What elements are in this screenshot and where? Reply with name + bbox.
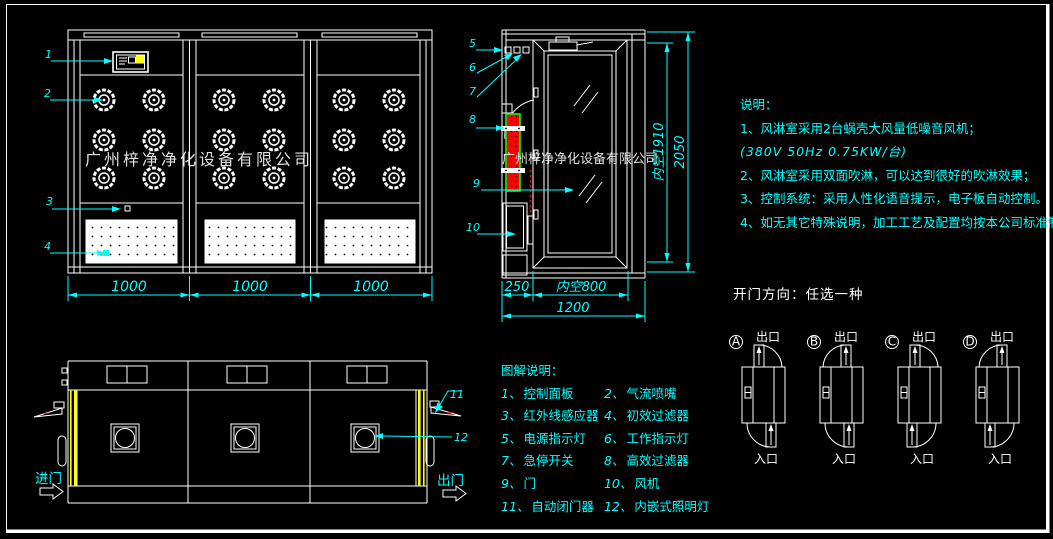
hepa-filter (501, 114, 525, 191)
option-letter: D (965, 335, 974, 349)
callout-12-light: 12 (454, 431, 468, 444)
door-direction-options: A 出口 入口 B 出口 入口 (730, 330, 1020, 466)
note-line: 1、风淋室采用2台蜗壳大风量低噪音风机； (740, 117, 1053, 141)
legend-title: 图解说明： (501, 360, 709, 383)
callout-8-hepa: 8 (469, 113, 476, 126)
exit-port-label: 出口 (912, 330, 936, 344)
legend-num: 4、 (604, 408, 624, 423)
legend-item: 5、电源指示灯 (501, 428, 600, 451)
legend-item: 9、门 (501, 473, 600, 496)
callout-1-control-panel: 1 (45, 48, 52, 61)
legend-label: 内嵌式照明灯 (634, 499, 709, 514)
door-option-b: B 出口 入口 (808, 330, 864, 466)
exit-door-edge (418, 390, 425, 486)
entry-port-label: 入口 (910, 452, 934, 466)
door-option-c: C 出口 入口 (886, 330, 942, 466)
note-line: 3、控制系统：采用人性化语音提示，电子板自动控制。 (740, 187, 1053, 211)
callout-11-door-closer: 11 (450, 388, 464, 401)
callout-3-ir-sensor: 3 (46, 195, 53, 208)
legend-label: 高效过滤器 (626, 453, 689, 468)
notes-block: 说明： 1、风淋室采用2台蜗壳大风量低噪音风机； (380V 50Hz 0.75… (740, 93, 1053, 234)
option-letter: A (732, 335, 741, 349)
option-letter: C (888, 335, 896, 349)
exit-port-label: 出口 (834, 330, 858, 344)
legend-num: 8、 (604, 453, 624, 468)
side-view-callouts (476, 47, 574, 237)
note-line-power-spec: (380V 50Hz 0.75KW/台) (740, 140, 1053, 164)
option-letter: B (810, 335, 818, 349)
cad-drawing-sheet: 1 2 3 4 1000 1000 1000 (0, 0, 1053, 539)
door-option-a: A 出口 入口 (730, 330, 786, 466)
callout-10-fan: 10 (466, 221, 480, 234)
glass-hatch (574, 85, 602, 203)
legend-label: 初效过滤器 (626, 408, 689, 423)
legend-block: 图解说明： 1、控制面板 2、气流喷嘴 3、红外线感应器 4、初效过滤器 5、电… (501, 360, 709, 518)
front-view: 1 2 3 4 1000 1000 1000 (44, 30, 432, 301)
callout-4-pre-filter: 4 (44, 240, 51, 253)
legend-num: 2、 (604, 386, 624, 401)
legend-item: 1、控制面板 (501, 383, 600, 406)
notes-title: 说明： (740, 93, 1053, 117)
legend-item: 12、内嵌式照明灯 (604, 496, 709, 519)
control-panel (113, 52, 148, 72)
legend-item: 3、红外线感应器 (501, 405, 600, 428)
dim-inner-1910: 内空1910 (652, 122, 667, 181)
legend-label: 控制面板 (523, 386, 573, 401)
note-line: 4、如无其它特殊说明，加工工艺及配置均按本公司标准制作。 (740, 211, 1053, 235)
entry-port-label: 入口 (988, 452, 1012, 466)
legend-item: 6、工作指示灯 (604, 428, 689, 451)
legend-num: 10、 (604, 476, 632, 491)
entry-port-label: 入口 (754, 452, 778, 466)
callout-9-door: 9 (473, 177, 480, 190)
legend-item: 8、高效过滤器 (604, 450, 689, 473)
entry-port-label: 入口 (832, 452, 856, 466)
legend-num: 11、 (501, 499, 529, 514)
legend-label: 自动闭门器 (531, 499, 594, 514)
note-line: 2、风淋室采用双面吹淋，可以达到很好的吹淋效果； (740, 164, 1053, 188)
legend-label: 电源指示灯 (523, 431, 586, 446)
dim-width-2: 1000 (232, 279, 268, 295)
callout-6-work-light: 6 (469, 61, 476, 74)
legend-item: 4、初效过滤器 (604, 405, 689, 428)
dim-1200: 1200 (556, 301, 589, 316)
dim-inner-800: 内空800 (556, 280, 607, 295)
legend-item: 7、急停开关 (501, 450, 600, 473)
legend-num: 3、 (501, 408, 521, 423)
exit-port-label: 出口 (756, 330, 780, 344)
legend-label: 急停开关 (523, 453, 573, 468)
legend-label: 门 (523, 476, 536, 491)
legend-num: 1、 (501, 386, 521, 401)
legend-label: 风机 (634, 476, 659, 491)
dim-250: 250 (505, 280, 530, 295)
door-direction-title: 开门方向：任选一种 (733, 283, 864, 303)
legend-item: 10、风机 (604, 473, 659, 496)
legend-label: 气流喷嘴 (626, 386, 676, 401)
exit-port-label: 出口 (990, 330, 1014, 344)
callout-2-nozzle: 2 (44, 87, 51, 100)
legend-num: 6、 (604, 431, 624, 446)
plan-view: 11 12 进门 出门 (34, 361, 468, 503)
entry-door-edge (70, 390, 77, 486)
legend-num: 12、 (604, 499, 632, 514)
legend-num: 9、 (501, 476, 521, 491)
dim-width-1: 1000 (111, 279, 147, 295)
legend-label: 红外线感应器 (523, 408, 598, 423)
entry-label: 进门 (35, 471, 62, 487)
legend-num: 5、 (501, 431, 521, 446)
legend-item: 2、气流喷嘴 (604, 383, 676, 406)
legend-num: 7、 (501, 453, 521, 468)
air-nozzles (94, 90, 404, 188)
door-option-d: D 出口 入口 (964, 330, 1020, 466)
side-view: 5 6 7 8 9 10 250 内空800 1200 内空1910 (466, 30, 695, 322)
pre-filter-grilles (86, 220, 415, 263)
callout-5-power-light: 5 (469, 37, 476, 50)
exit-label: 出门 (437, 473, 464, 489)
callout-7-estop: 7 (469, 85, 476, 98)
dim-width-3: 1000 (353, 279, 389, 295)
door-handle (528, 170, 533, 244)
legend-item: 11、自动闭门器 (501, 496, 600, 519)
legend-label: 工作指示灯 (626, 431, 689, 446)
panel-button (136, 56, 144, 64)
door-closer-left (34, 402, 66, 466)
dim-2050: 2050 (673, 135, 688, 168)
